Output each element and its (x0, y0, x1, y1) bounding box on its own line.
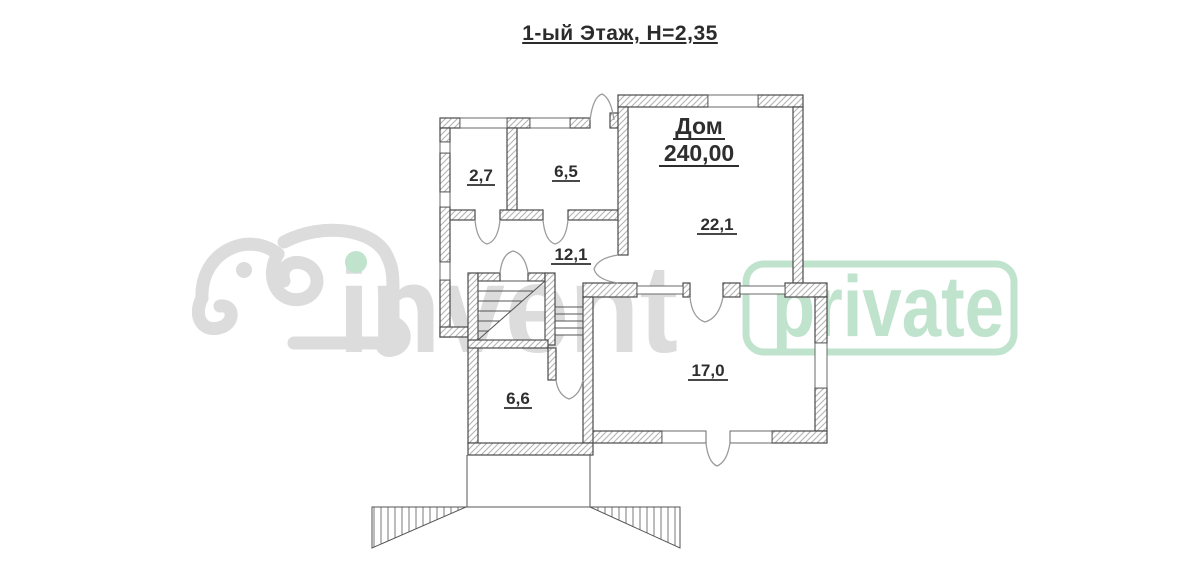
room-label-2-7: 2,7 (469, 166, 493, 185)
page-title: 1-ый Этаж, Н=2,35 (220, 22, 1020, 46)
house-name-label: Дом (675, 113, 722, 139)
door-arc-room-6-6 (556, 380, 583, 399)
porch-ramp-left (372, 507, 466, 548)
room-label-6-6: 6,6 (506, 389, 530, 408)
porch (372, 455, 680, 548)
floorplan-canvas: invent private (0, 0, 1200, 577)
door-arc-room-17-top (690, 297, 723, 322)
watermark-private-text: private (772, 259, 1004, 355)
door-arc-room-17-exit (706, 443, 730, 466)
room-label-12-1: 12,1 (554, 245, 587, 264)
house-area-label: 240,00 (664, 140, 734, 166)
invent-i-dot (345, 251, 367, 273)
elephant-eye (236, 262, 252, 278)
room-label-6-5: 6,5 (554, 162, 578, 181)
watermark-layer: invent private (198, 230, 1014, 379)
floorplan-page: 1-ый Этаж, Н=2,35 (0, 0, 1200, 577)
watermark-invent-text: invent (338, 240, 678, 379)
room-label-17-0: 17,0 (691, 361, 724, 380)
porch-ramp-right (590, 507, 680, 548)
room-label-22-1: 22,1 (700, 215, 733, 234)
